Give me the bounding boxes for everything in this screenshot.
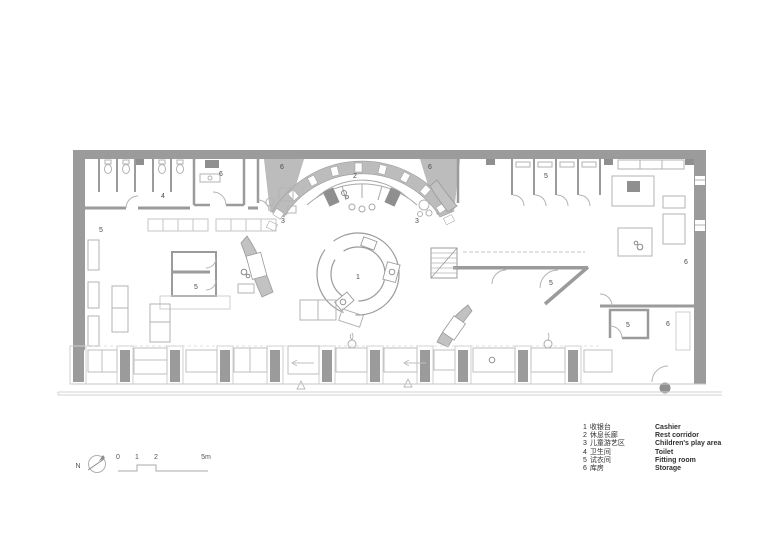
room-label: 5 [544, 173, 548, 180]
legend-number: 2 [583, 432, 587, 440]
storage-room-left [194, 159, 244, 205]
legend-en-label: Fitting room [655, 457, 696, 465]
room-label: 5 [549, 280, 553, 287]
legend-number: 5 [583, 457, 587, 465]
scale-tick-0: 0 [116, 454, 120, 461]
scale-tick-1: 1 [135, 454, 139, 461]
legend-en-label: Cashier [655, 424, 681, 432]
north-arrow: N [75, 455, 105, 473]
legend-zh-label: 收银台 [590, 424, 611, 432]
scale-tick-5m: 5m [201, 454, 211, 461]
legend-item: 4卫生间 Toilet [583, 449, 773, 457]
room-label: 4 [161, 193, 165, 200]
legend-item: 6库房 Storage [583, 465, 773, 473]
floor-plan-sheet: 4 6 6 2 6 3 3 5 5 1 5 5 6 5 6 N 0 1 2 5m… [0, 0, 780, 551]
toilet-area [85, 159, 258, 208]
curved-bench [307, 180, 417, 212]
legend-en-label: Toilet [655, 449, 673, 457]
room-label: 5 [194, 284, 198, 291]
legend-number: 3 [583, 440, 587, 448]
room-label: 6 [684, 259, 688, 266]
room-label: 3 [415, 218, 419, 225]
legend-zh-label: 卫生间 [590, 449, 611, 457]
legend-zh-label: 试衣间 [590, 457, 611, 465]
scale-tick-2: 2 [154, 454, 158, 461]
room-label: 2 [353, 173, 357, 180]
legend-en-label: Storage [655, 465, 681, 473]
right-fixtures [612, 160, 685, 256]
room-label: 5 [99, 227, 103, 234]
legend: 1收银台 Cashier 2休息长廊 Rest corridor 3儿童游艺区 … [583, 424, 773, 473]
room-label: 3 [281, 218, 285, 225]
fitting-rooms-top-right [512, 159, 600, 206]
legend-number: 4 [583, 449, 587, 457]
legend-zh-label: 库房 [590, 465, 604, 473]
legend-item: 5试衣间 Fitting room [583, 457, 773, 465]
legend-number: 6 [583, 465, 587, 473]
room-label: 1 [356, 274, 360, 281]
legend-item: 1收银台 Cashier [583, 424, 773, 432]
room-label: 6 [219, 171, 223, 178]
room-label: 6 [428, 164, 432, 171]
scale-bar: 0 1 2 5m [116, 454, 211, 471]
north-label: N [75, 463, 80, 470]
room-label: 5 [626, 322, 630, 329]
legend-number: 1 [583, 424, 587, 432]
room-label: 6 [280, 164, 284, 171]
legend-en-label: Children's play area [655, 440, 721, 448]
right-center-wall [431, 248, 588, 304]
legend-zh-label: 儿童游艺区 [590, 440, 625, 448]
fitting-island-left [160, 252, 230, 309]
bottom-right-rooms [600, 294, 694, 394]
legend-en-label: Rest corridor [655, 432, 699, 440]
legend-item: 3儿童游艺区 Children's play area [583, 440, 773, 448]
room-label: 6 [666, 321, 670, 328]
